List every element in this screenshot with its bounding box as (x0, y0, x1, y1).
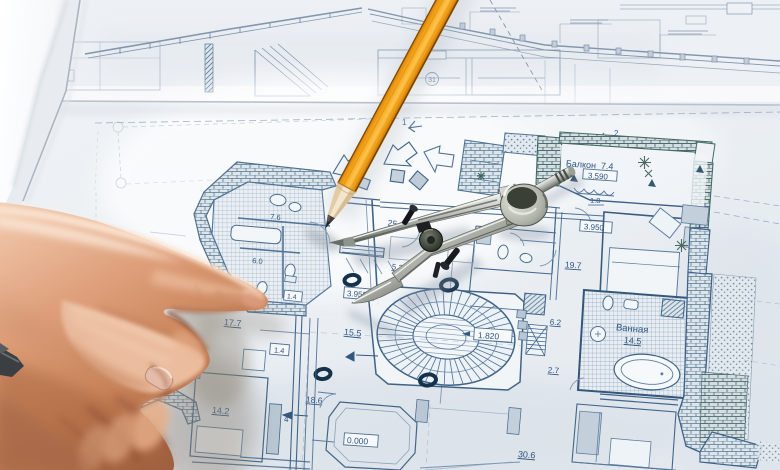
svg-text:1.4: 1.4 (287, 293, 298, 301)
svg-text:30.6: 30.6 (518, 449, 536, 460)
svg-text:6.0: 6.0 (252, 256, 263, 266)
svg-text:15.5: 15.5 (343, 327, 361, 339)
svg-text:1.4: 1.4 (274, 345, 285, 355)
svg-text:2.7: 2.7 (547, 365, 559, 375)
svg-text:6.2: 6.2 (549, 317, 561, 327)
svg-text:19.7: 19.7 (565, 259, 582, 270)
svg-text:7.6: 7.6 (270, 212, 281, 222)
svg-text:0.000: 0.000 (347, 435, 369, 446)
svg-text:3.950: 3.950 (584, 222, 605, 232)
svg-text:14.5: 14.5 (624, 335, 642, 346)
svg-text:1.820: 1.820 (478, 330, 500, 341)
svg-text:4: 4 (284, 415, 289, 424)
svg-text:3.590: 3.590 (588, 171, 609, 181)
